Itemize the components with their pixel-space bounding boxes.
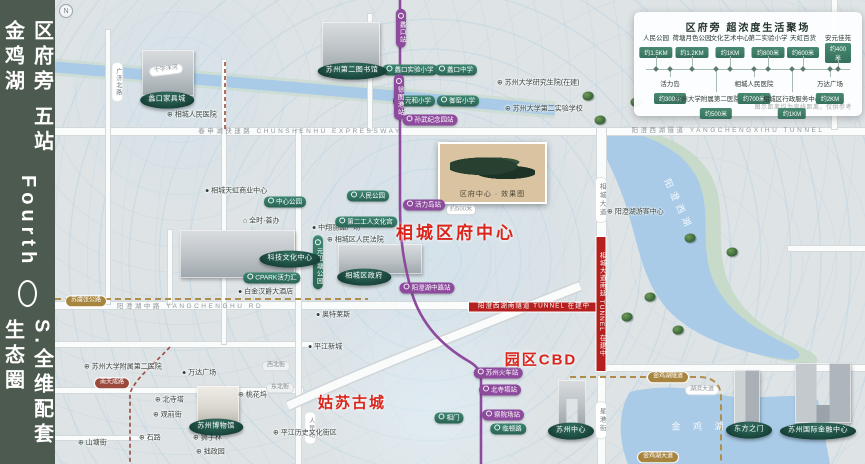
legend-distance-badge: 约2KM <box>816 93 844 104</box>
road-segment <box>222 60 226 344</box>
legend-item-name: 相城区行政服务中心 <box>763 93 822 103</box>
road-name: 阳澄湖中路 YANGCHENGHU RD <box>117 303 263 311</box>
landmark-label: 苏州博物馆 <box>189 419 243 436</box>
marketing-map: 区府旁 五站金鸡湖 Fourth S.全维配套生态圈 N 区 <box>0 0 865 464</box>
landmark-label: 苏州中心 <box>548 423 594 440</box>
poi-label: ⊕ 桃花坞 <box>238 392 267 401</box>
project-building-silhouette <box>450 152 535 186</box>
poi-label: ⊕ 苏州大学研究生院(在建) <box>497 80 579 89</box>
project-render-image: 区府中心 · 效果图 <box>438 142 547 204</box>
road-name-pill: 相城大道 <box>596 178 606 222</box>
legend-item: 相城区行政服务中心约1KM <box>763 93 822 121</box>
legend-timeline-marker <box>827 66 833 72</box>
slogan-top: 区府旁 五站金鸡湖 <box>0 20 57 163</box>
legend-item-name: 荷塘月色公园 <box>673 32 712 42</box>
landmark-label: 东方之门 <box>726 422 772 439</box>
legend-timeline-marker <box>800 66 806 72</box>
legend-card: 区府旁 超浓度生活聚场 图示距离均为直线距离，仅供参考 人民公园约1.5KM荷塘… <box>634 12 862 116</box>
legend-timeline <box>646 69 850 70</box>
poi-label: ⌂ 全时·荟办 <box>243 218 280 227</box>
poi-label: ⊕ 平江历史文化街区 <box>273 430 337 439</box>
legend-item-name: 安元佳苑 <box>825 32 851 42</box>
transit-poi-pill: 蠡口中学 <box>435 64 477 75</box>
poi-label: ⊕ 相城人民医院 <box>167 112 217 121</box>
legend-item-name: 文化艺术中心 <box>711 32 750 42</box>
road-name-pill: 东北街 <box>266 383 294 393</box>
tree-icon <box>645 293 656 302</box>
poi-label: ● 平江新城 <box>308 344 342 353</box>
district-headline: 园区CBD <box>505 352 578 371</box>
legend-timeline-marker <box>789 66 795 72</box>
transit-poi-pill: CPARK活力汇 <box>243 272 300 283</box>
poi-label: ● 奥特莱斯 <box>316 312 350 321</box>
poi-label: ● 相城天虹商业中心 <box>205 188 267 197</box>
poi-label: ⊕ 狮子林 <box>193 435 222 444</box>
road-segment <box>55 342 313 347</box>
metro-station-label: 阳澄湖中路站 <box>400 282 455 293</box>
oval-decoration-icon <box>18 280 37 307</box>
legend-timeline-marker <box>751 66 757 72</box>
project-caption: 区府中心 · 效果图 <box>460 189 525 199</box>
transit-poi-pill: 第二工人文化宫 <box>335 216 397 227</box>
legend-item-name: 活力岛 <box>654 78 686 88</box>
legend-timeline-marker <box>765 66 771 72</box>
highway-pill: 金鸡湖大道 <box>637 451 679 463</box>
legend-item-name: 天虹百货 <box>787 32 819 42</box>
road-name-pill: 星港街 <box>596 402 606 438</box>
road-segment <box>106 30 110 304</box>
poi-label: ⊕ 拙政园 <box>196 449 225 458</box>
transit-poi-pill: 御窑小学 <box>437 95 479 106</box>
slogan-bottom: S.全维配套生态圈 <box>0 319 57 458</box>
legend-timeline-marker <box>835 66 841 72</box>
poi-label: ⊕ 观前街 <box>153 412 182 421</box>
tree-icon <box>595 116 606 125</box>
landmark-label: 蠡口家具城 <box>140 92 194 109</box>
tree-icon <box>727 248 738 257</box>
water-label: 金 鸡 湖 <box>671 421 728 432</box>
metro-station-label: 活力岛站 <box>403 199 445 210</box>
landmark-label: 科技文化中心 <box>260 251 321 268</box>
construction-banner: 阳澄西湖南隧道 TUNNEL 在建中 <box>468 302 600 313</box>
building-illustration-twin-towers <box>795 363 851 423</box>
tree-icon <box>622 313 633 322</box>
metro-station-label: 察院场站 <box>482 409 524 420</box>
legend-timeline-marker <box>653 66 659 72</box>
legend-item-name: 第二实验小学 <box>749 32 788 42</box>
legend-distance-badge: 约500米 <box>700 108 732 119</box>
poi-label: ⊕ 相城区人民法院 <box>327 237 384 246</box>
building-illustration-tower <box>734 370 760 424</box>
tree-icon <box>583 92 594 101</box>
transit-poi-pill: 临顿路 <box>490 423 526 434</box>
poi-label: ● 万达广场 <box>182 370 216 379</box>
road-name-pill: 西北街 <box>262 361 290 371</box>
district-headline: 姑苏古城 <box>318 395 386 414</box>
highway-pill: 苏虞张公路 <box>65 295 107 307</box>
legend-distance-badge: 约1KM <box>778 108 806 119</box>
tree-icon <box>673 326 684 335</box>
road-name: 阳澄西湖隧道 YANGCHENGXIHU TUNNEL <box>632 127 825 135</box>
road-segment <box>168 230 172 304</box>
distance-pill: 约500米 <box>446 205 476 215</box>
legend-item-name: 万达广场 <box>816 78 844 88</box>
poi-label: ● 白金汉爵大酒店 <box>238 289 293 298</box>
road-segment <box>788 246 865 251</box>
transit-poi-pill: 人民公园 <box>347 190 389 201</box>
metro-station-label: 北寺塔站 <box>479 384 521 395</box>
legend-timeline-marker <box>667 66 673 72</box>
legend-item-name: 相城人民医院 <box>735 78 774 88</box>
road-segment <box>296 130 301 464</box>
poi-label: ⊕ 阳澄湖游客中心 <box>607 209 664 218</box>
transit-poi-pill: 中心公园 <box>264 196 306 207</box>
legend-timeline-marker <box>727 66 733 72</box>
legend-connector <box>792 69 793 92</box>
transit-poi-pill: 蠡口实验小学 <box>383 64 438 75</box>
metro-station-label: 蠡口站 <box>396 9 406 48</box>
tree-icon <box>685 234 696 243</box>
transit-poi-pill: 相门 <box>435 412 464 423</box>
metro-station-label: 孙武纪念园站 <box>403 114 458 125</box>
road-name-pill: 南天成路 <box>94 377 130 389</box>
slogan-sidebar: 区府旁 五站金鸡湖 Fourth S.全维配套生态圈 <box>0 0 55 464</box>
road-name-pill: 湖滨大道 <box>685 385 719 395</box>
poi-label: ⊕ 苏州大学第二实验学校 <box>505 106 583 115</box>
district-headline: 相城区府中心 <box>396 222 516 243</box>
landmark-label: 苏州国际金融中心 <box>780 423 856 440</box>
poi-label: ⊕ 苏州大学附属第二医院 <box>84 364 162 373</box>
landmark-label: 苏州第二图书馆 <box>318 63 387 80</box>
poi-label: ⊕ 北寺塔 <box>155 397 184 406</box>
construction-banner: 相城大道南延 TUNNEL 在建中 <box>596 236 607 372</box>
road-name-pill: 人民路 <box>305 413 315 444</box>
highway-pill: 金鸡湖隧道 <box>647 371 689 383</box>
legend-item-name: 人民公园 <box>639 32 672 42</box>
slogan-latin: Fourth <box>16 175 39 268</box>
legend-connector <box>716 69 717 92</box>
metro-station-label: 徐图港站 <box>394 74 404 120</box>
poi-label: ⊕ 山塘街 <box>78 440 107 449</box>
poi-label: ⊕ 石路 <box>139 435 161 444</box>
compass-icon: N <box>59 4 73 18</box>
landmark-label: 相城区政府 <box>337 269 391 286</box>
legend-item: 万达广场约2KM <box>816 78 844 106</box>
road-name-pill: 广济北路 <box>112 63 122 101</box>
legend-timeline-marker <box>689 66 695 72</box>
legend-timeline-marker <box>713 66 719 72</box>
road-name: 春申湖快速路 CHUNSHENHU EXPRESSWAY <box>198 128 402 136</box>
